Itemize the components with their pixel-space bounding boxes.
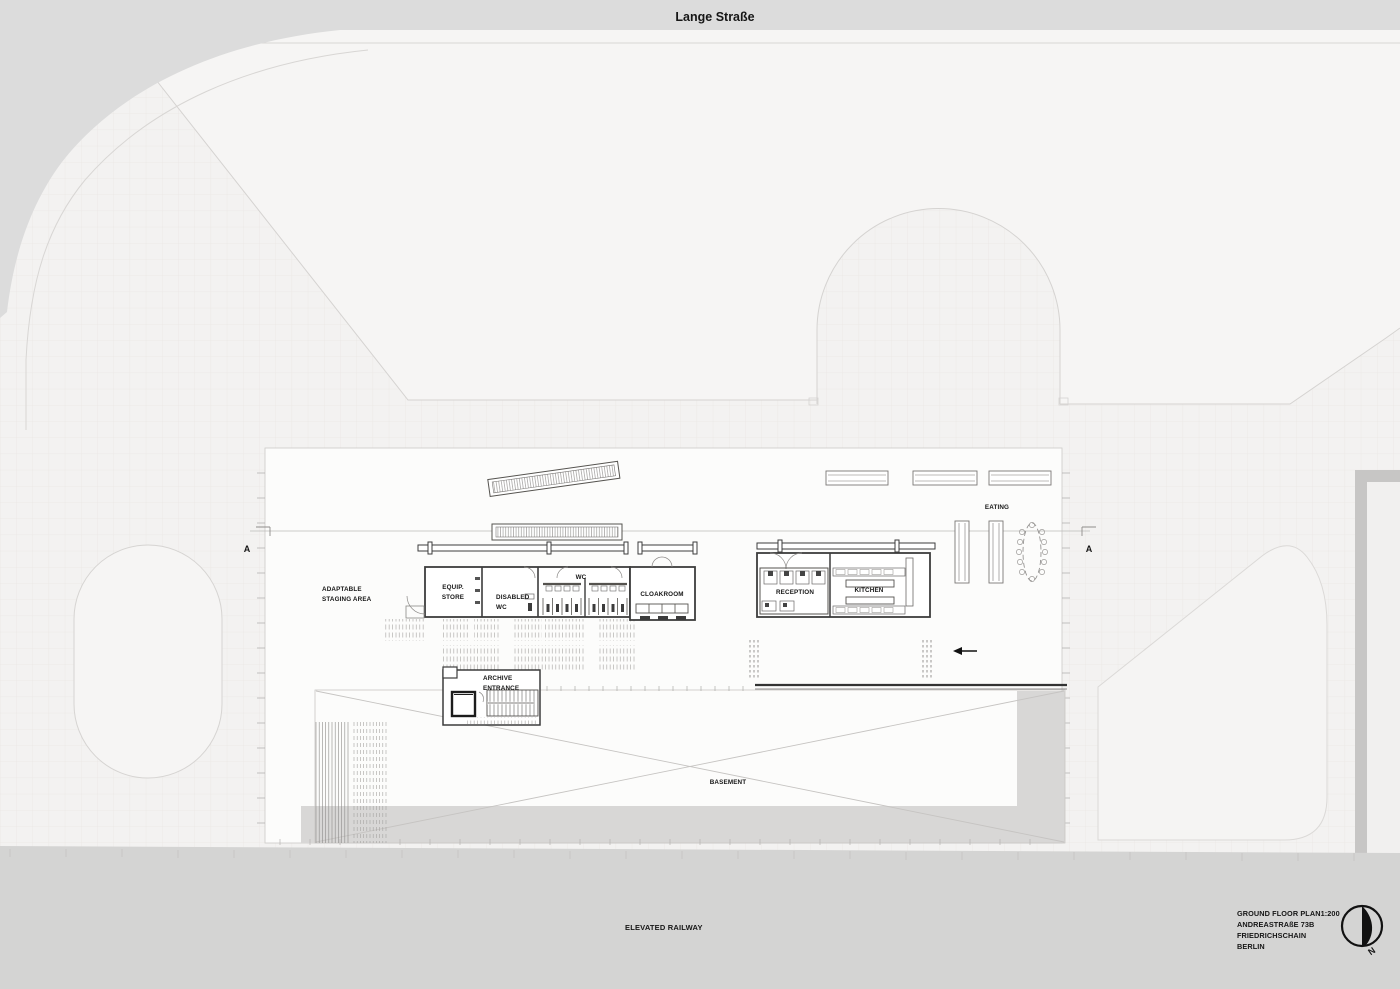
- basement-label: BASEMENT: [710, 779, 747, 786]
- floor-plan-page: Lange Straße A A ADAPTABLE STAGING AREA …: [0, 0, 1400, 989]
- disabled-wc-label-2: WC: [496, 604, 507, 611]
- section-marker-right: A: [1086, 544, 1093, 554]
- reception-kitchen-block: [757, 553, 930, 617]
- neighbour-wall-left: [1355, 470, 1367, 853]
- neighbour-building: [1355, 470, 1400, 853]
- oval-planter: [74, 545, 222, 778]
- archive-label-2: ENTRANCE: [483, 685, 519, 692]
- basement-shadow-right: [1017, 691, 1065, 843]
- cloakroom-label: CLOAKROOM: [640, 591, 683, 598]
- wc-label: WC: [576, 574, 587, 581]
- neighbour-interior: [1367, 482, 1400, 853]
- archive-label-1: ARCHIVE: [483, 675, 512, 682]
- railway-label: ELEVATED RAILWAY: [625, 923, 703, 932]
- archive-lift: [452, 692, 475, 716]
- basement-shadow-bottom: [301, 806, 1065, 843]
- horizontal-bench: [492, 524, 622, 540]
- street-name-label: Lange Straße: [675, 10, 754, 24]
- eating-label: EATING: [985, 504, 1009, 511]
- disabled-wc-toilet: [528, 603, 532, 611]
- railway-band: [0, 846, 1400, 989]
- title-line-2: ANDREASTRAßE 73B: [1237, 920, 1314, 929]
- staging-area-label-1: ADAPTABLE: [322, 586, 362, 593]
- disabled-wc-label-1: DISABLED: [496, 594, 530, 601]
- title-line-4: BERLIN: [1237, 942, 1265, 951]
- equip-store-label-1: EQUIP.: [442, 584, 464, 591]
- kitchen-label: KITCHEN: [854, 587, 883, 594]
- staging-area-label-2: STAGING AREA: [322, 596, 372, 603]
- archive-deck-hatch: [467, 717, 538, 724]
- section-marker-left: A: [244, 544, 251, 554]
- cloakroom-room: [630, 557, 695, 620]
- reception-label: RECEPTION: [776, 589, 814, 596]
- equip-store-label-2: STORE: [442, 594, 464, 601]
- title-line-1: GROUND FLOOR PLAN1:200: [1237, 909, 1340, 918]
- service-block-outline: [425, 567, 630, 617]
- archive-top-tab: [443, 667, 457, 678]
- floor-plate: [250, 448, 1096, 843]
- railway-surface: [0, 846, 1400, 989]
- long-tables-horizontal: [826, 471, 1051, 485]
- plan-canvas: Lange Straße A A ADAPTABLE STAGING AREA …: [0, 0, 1400, 989]
- plate-outline: [265, 448, 1062, 843]
- title-line-3: FRIEDRICHSCHAIN: [1237, 931, 1306, 940]
